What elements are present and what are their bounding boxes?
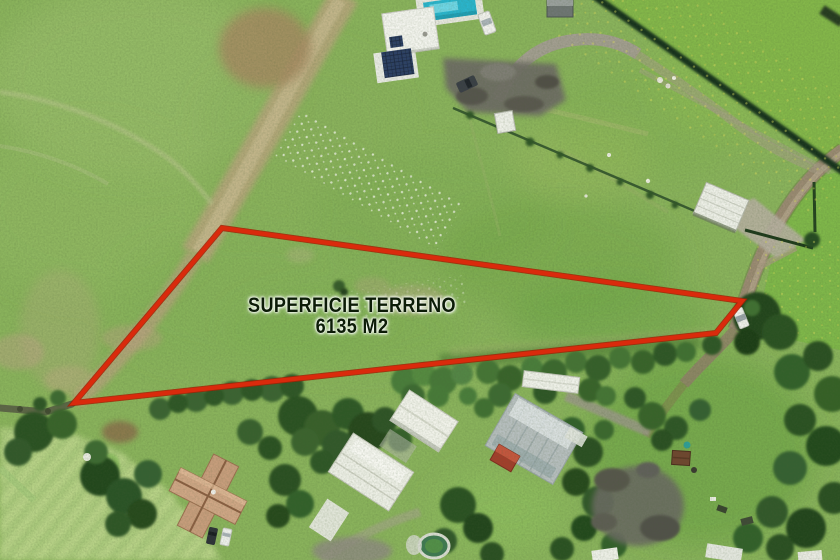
aerial-photo <box>0 0 840 560</box>
area-value-label: 6135 M2 <box>248 316 456 337</box>
photo-grain <box>0 0 840 560</box>
aerial-photo-stage: SUPERFICIE TERRENO 6135 M2 <box>0 0 840 560</box>
land-area-label: SUPERFICIE TERRENO 6135 M2 <box>248 295 456 337</box>
surface-label: SUPERFICIE TERRENO <box>248 295 456 316</box>
